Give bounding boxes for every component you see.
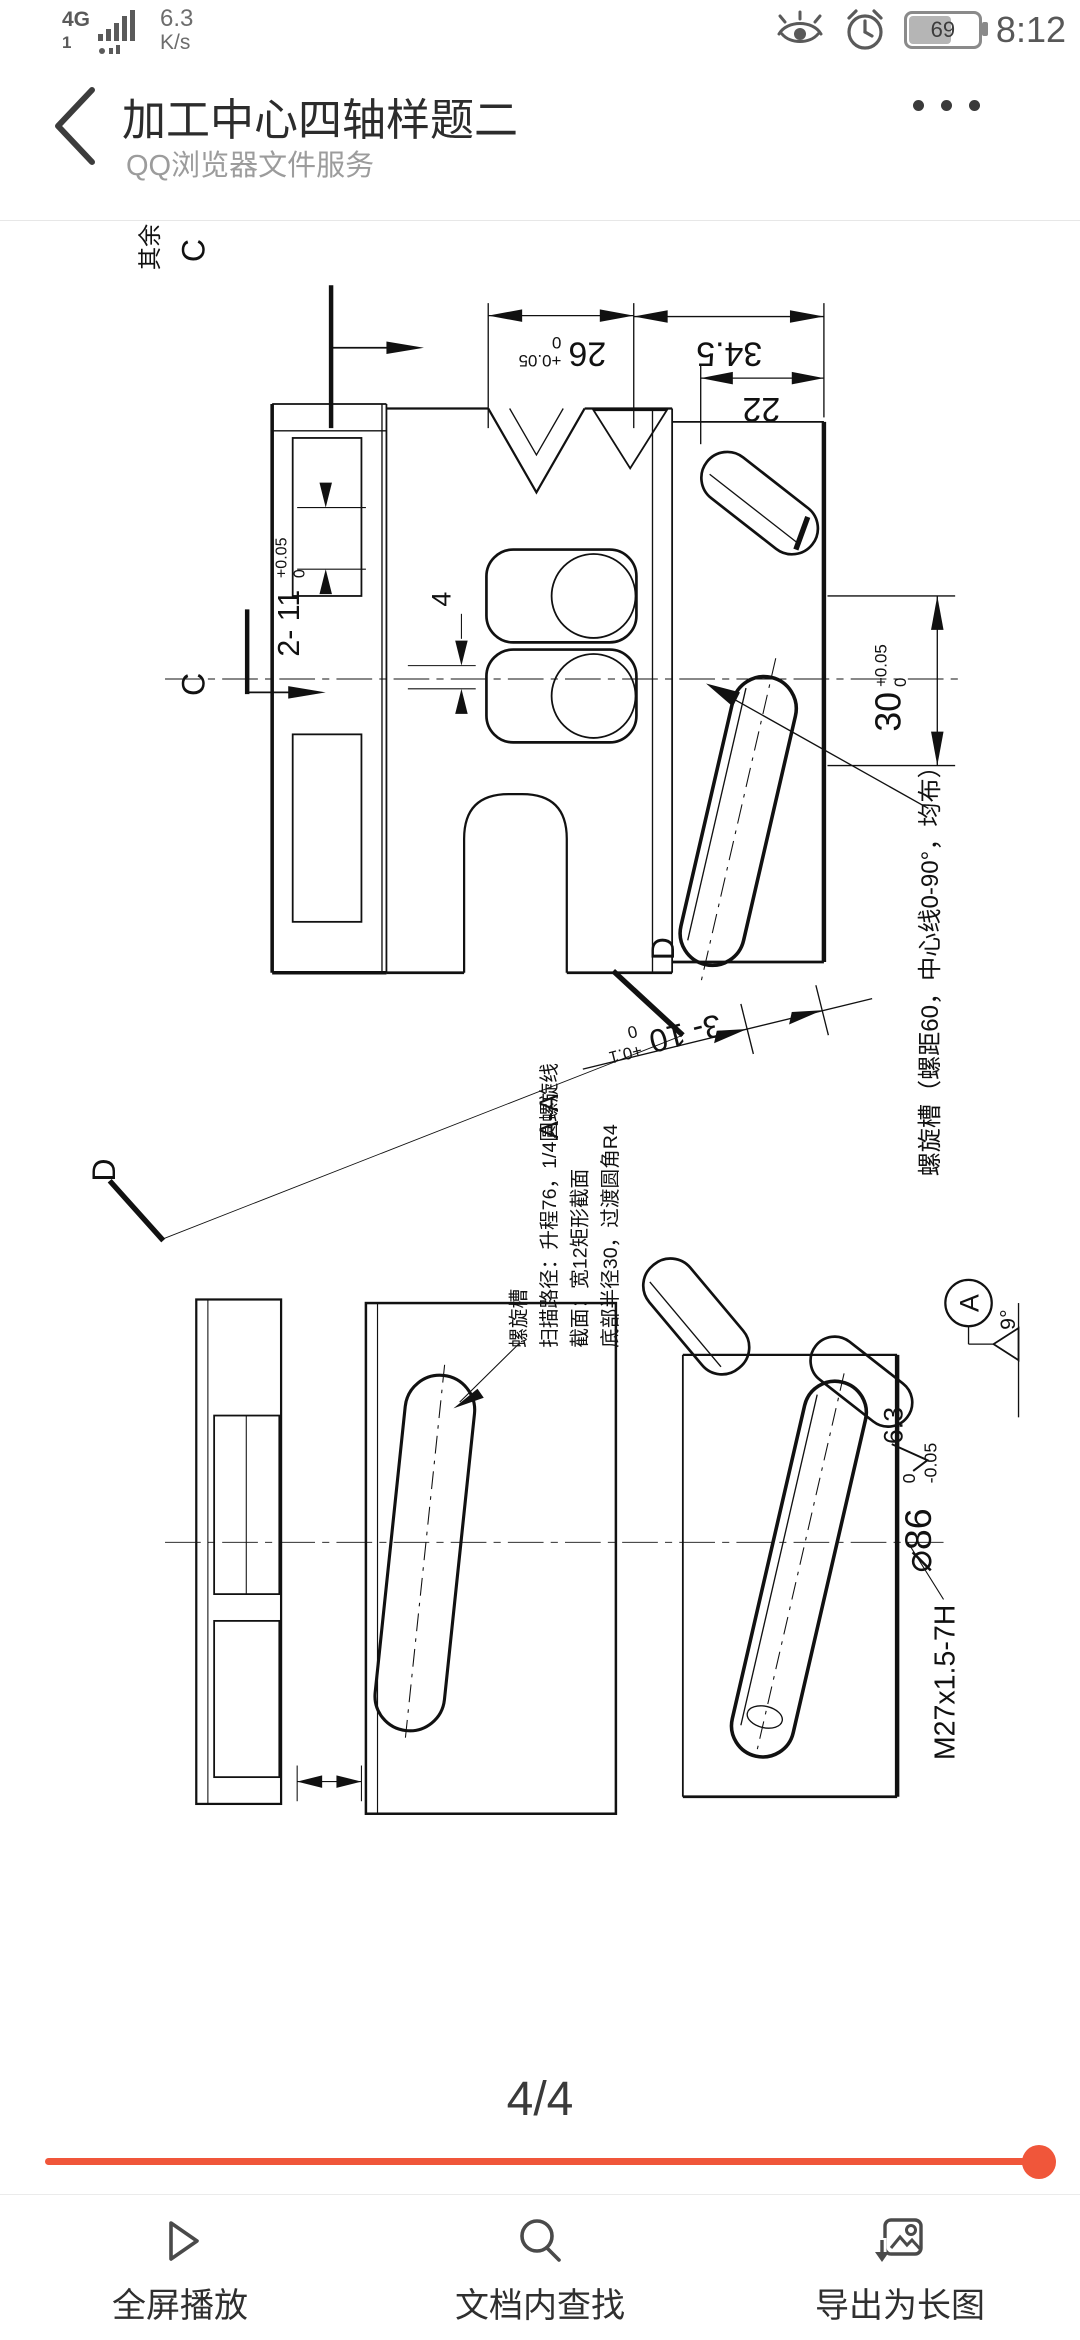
find-in-document-button[interactable]: 文档内查找 — [360, 2196, 720, 2340]
clock: 8:12 — [996, 9, 1066, 51]
network-speed: 6.3 K/s — [160, 6, 193, 53]
export-long-image-label: 导出为长图 — [815, 2278, 985, 2327]
signal-indicator: 4G 1 — [62, 4, 146, 56]
section-c-label: C — [175, 673, 211, 696]
dimension-22: 22 — [701, 366, 824, 445]
svg-text:M27x1.5-7H: M27x1.5-7H — [929, 1605, 961, 1761]
eye-protection-icon — [774, 9, 826, 51]
dimension-30: 30 +0.05 0 — [827, 596, 955, 766]
fullscreen-play-label: 全屏播放 — [112, 2278, 248, 2327]
angle-9-label: 9° — [996, 1309, 1020, 1329]
page-indicator: 4/4 — [0, 2072, 1080, 2127]
find-in-document-label: 文档内查找 — [455, 2278, 625, 2327]
export-long-image-button[interactable]: 导出为长图 — [720, 2196, 1080, 2340]
svg-text:螺旋槽（螺距60，中心线0-90°，均布）: 螺旋槽（螺距60，中心线0-90°，均布） — [917, 754, 944, 1176]
lower-view-centre-block — [366, 1248, 760, 1814]
dimension-2x11: 2- 11 +0.05 0 — [272, 483, 365, 657]
export-long-image-icon — [869, 2210, 931, 2272]
battery-percent: 69 — [931, 17, 955, 43]
thread-callout: M27x1.5-7H — [908, 1542, 961, 1760]
document-page[interactable]: 其余 3.2 C C — [0, 221, 1080, 2053]
toolbar-divider — [0, 2194, 1080, 2195]
dia-86-tol-upper: 0 — [899, 1473, 919, 1483]
dim-2x11-tol-lower: 0 — [290, 569, 308, 578]
dim-4-value: 4 — [427, 592, 457, 607]
small-bottom-dimension — [297, 1766, 361, 1802]
dim-34-5-value: 34.5 — [696, 334, 762, 372]
section-c-marker-top: C — [175, 239, 424, 428]
status-bar: 4G 1 6.3 K/s — [0, 0, 1080, 60]
dia-86-tol-lower: -0.05 — [920, 1443, 940, 1484]
helix-note: 螺旋槽（螺距60，中心线0-90°，均布） — [917, 754, 944, 1176]
dim-30-value: 30 — [869, 692, 909, 732]
datum-a-label: A — [954, 1294, 984, 1312]
signal-bars-icon — [90, 4, 146, 56]
progress-slider-knob[interactable] — [1022, 2145, 1056, 2179]
dim-26-tol-lower: 0 — [552, 333, 561, 352]
page-title: 加工中心四轴样题二 — [122, 84, 518, 148]
progress-slider-track[interactable] — [45, 2158, 1044, 2165]
section-c-label: C — [175, 239, 211, 262]
dim-26-tol-upper: +0.05 — [519, 351, 562, 370]
dimension-34-5: 34.5 — [634, 303, 824, 417]
fullscreen-play-button[interactable]: 全屏播放 — [0, 2196, 360, 2340]
search-icon — [509, 2210, 571, 2272]
network-type-label: 4G — [62, 9, 90, 30]
upper-view-centre-block — [386, 408, 672, 972]
section-d-marker-left: D — [86, 1158, 163, 1240]
spec-line-2: 扫描路径：升程76，1/4圆螺旋线 — [539, 1063, 561, 1348]
play-icon — [149, 2210, 211, 2272]
battery-indicator: 69 — [904, 11, 982, 49]
section-d-label: D — [645, 937, 681, 960]
lower-view-left-panel — [196, 1299, 281, 1803]
page-subtitle: QQ浏览器文件服务 — [126, 142, 374, 184]
bottom-toolbar: 全屏播放 文档内查找 导出为长图 — [0, 2196, 1080, 2340]
dia-86-value: ⌀86 — [897, 1508, 939, 1572]
alarm-clock-icon — [840, 5, 890, 55]
more-menu-button[interactable] — [913, 100, 980, 111]
sim2-label: 1 — [62, 34, 90, 51]
spec-line-1: 螺旋槽 — [509, 1289, 531, 1348]
dim-2x11-tol-upper: +0.05 — [272, 537, 290, 578]
spec-line-3: 截面：宽12矩形截面 — [569, 1169, 591, 1348]
spec-line-4: 底部半径30，过渡圆角R4 — [600, 1124, 622, 1348]
dim-26-value: 26 — [569, 334, 607, 372]
battery-nub — [982, 22, 988, 36]
dim-2x11-value: 2- 11 — [273, 590, 306, 657]
datum-a-symbol: A 9° — [945, 1280, 1020, 1417]
surface-note-prefix: 其余 — [137, 224, 163, 270]
dim-3x10-tol-lower: 0 — [626, 1021, 640, 1042]
speed-value: 6.3 — [160, 6, 193, 31]
section-d-label: D — [86, 1158, 122, 1181]
screen: 4G 1 6.3 K/s — [0, 0, 1080, 2340]
header: 加工中心四轴样题二 QQ浏览器文件服务 — [0, 60, 1080, 221]
dimension-dia86: ⌀86 0 -0.05 — [897, 1443, 940, 1573]
dimension-4: 4 — [408, 592, 476, 714]
speed-unit: K/s — [160, 32, 193, 54]
lower-view-right-block — [683, 1327, 922, 1797]
cad-drawing: 其余 3.2 C C — [0, 221, 1080, 2053]
back-button[interactable] — [50, 84, 102, 168]
dim-30-tol-upper: +0.05 — [871, 644, 890, 687]
